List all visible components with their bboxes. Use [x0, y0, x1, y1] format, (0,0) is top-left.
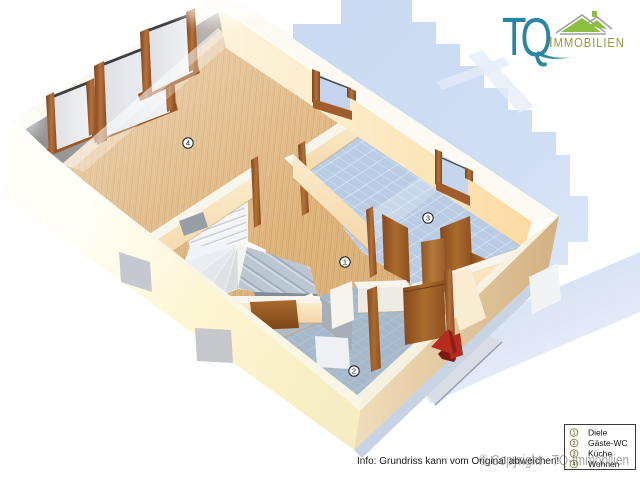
svg-text:3: 3 [426, 214, 430, 223]
svg-text:IMMOBILIEN: IMMOBILIEN [549, 34, 625, 51]
svg-text:4: 4 [186, 139, 190, 148]
svg-text:1: 1 [572, 431, 575, 437]
svg-text:Gäste-WC: Gäste-WC [588, 438, 628, 448]
svg-text:1: 1 [343, 258, 347, 267]
svg-text:Diele: Diele [588, 428, 608, 438]
svg-text:2: 2 [572, 441, 575, 447]
svg-text:2: 2 [352, 367, 356, 376]
svg-text:TQ: TQ [502, 7, 552, 68]
svg-text:© Copyright - TQ-Immobilien: © Copyright - TQ-Immobilien [479, 452, 629, 469]
